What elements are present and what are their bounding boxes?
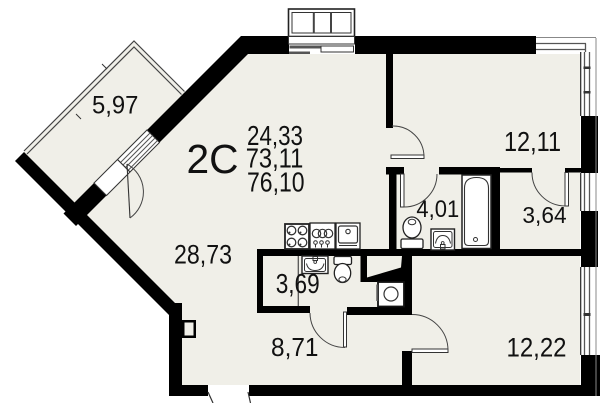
svg-text:3,64: 3,64 xyxy=(522,202,566,228)
svg-text:2С: 2С xyxy=(187,136,239,182)
svg-text:8,71: 8,71 xyxy=(271,332,319,362)
svg-text:76,10: 76,10 xyxy=(247,166,305,197)
svg-text:12,11: 12,11 xyxy=(504,126,561,157)
svg-text:4,01: 4,01 xyxy=(416,196,459,223)
svg-text:3,69: 3,69 xyxy=(276,268,320,299)
svg-text:28,73: 28,73 xyxy=(174,240,232,270)
svg-text:5,97: 5,97 xyxy=(92,92,138,120)
svg-text:12,22: 12,22 xyxy=(507,333,567,363)
